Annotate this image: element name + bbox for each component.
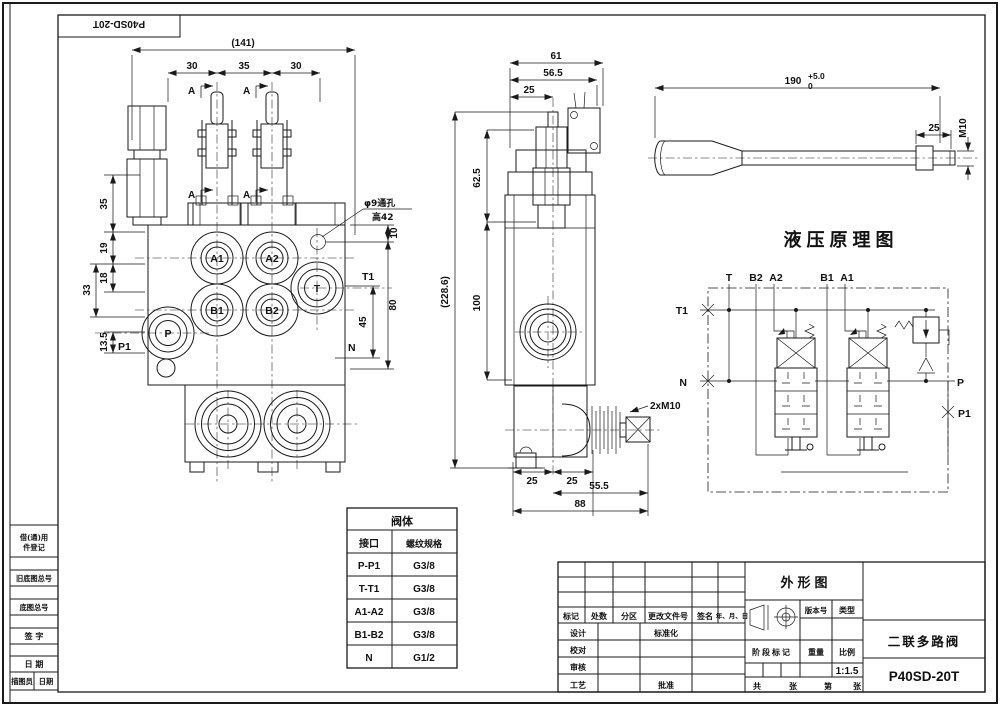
tb-page: 第 bbox=[824, 681, 832, 691]
left-title-strip: 借(通)用 件登记 旧底图总号 底图总号 签 字 日 期 描图员 日期 bbox=[10, 525, 58, 690]
side-view: 2xM10 61 56.5 25 (228.6) 62.5 100 25 25 … bbox=[440, 51, 681, 516]
port-p: P bbox=[164, 328, 171, 340]
dim-right-80: 80 bbox=[388, 299, 399, 311]
schem-p1: P1 bbox=[958, 408, 971, 420]
schem-t: T bbox=[726, 272, 733, 284]
spec-r2-port: T-T1 bbox=[359, 584, 380, 595]
tb-sign: 签名 bbox=[696, 611, 713, 621]
strip-signature: 签 字 bbox=[24, 631, 44, 641]
dim-25-top: 25 bbox=[523, 85, 535, 96]
dim-handle-m10: M10 bbox=[958, 118, 969, 138]
label-t1: T1 bbox=[362, 271, 374, 283]
front-view: A A A A (141) 30 35 30 35 19 18 33 13.5 … bbox=[82, 38, 412, 482]
dim-55-5: 55.5 bbox=[589, 481, 609, 492]
dim-overall-width: (141) bbox=[231, 38, 254, 49]
port-t: T bbox=[314, 283, 321, 295]
handle-view: 190 +5.0 0 25 M10 bbox=[648, 71, 978, 180]
spec-r5-port: N bbox=[365, 653, 372, 664]
strip-borrow-1: 借(通)用 bbox=[19, 533, 48, 542]
tb-model: P40SD-20T bbox=[889, 669, 960, 684]
dim-30-left: 30 bbox=[186, 61, 198, 72]
spec-r3-port: A1-A2 bbox=[355, 607, 384, 618]
dim-2xm10: 2xM10 bbox=[650, 401, 681, 412]
strip-master-no: 底图总号 bbox=[20, 603, 49, 612]
spec-table: 阀体 接口 螺纹规格 P-P1 G3/8 T-T1 G3/8 A1-A2 G3/… bbox=[347, 508, 457, 668]
spec-title: 阀体 bbox=[391, 514, 414, 528]
port-a2: A2 bbox=[265, 253, 279, 265]
tb-outline-drawing: 外形图 bbox=[779, 575, 831, 591]
strip-date: 日 期 bbox=[25, 659, 44, 669]
spec-r1-port: P-P1 bbox=[358, 561, 381, 572]
label-p1: P1 bbox=[118, 341, 131, 353]
dim-left-35: 35 bbox=[99, 198, 110, 210]
strip-tracer: 描图员 bbox=[11, 677, 33, 686]
tb-approve: 批准 bbox=[658, 680, 674, 690]
spec-r1-thread: G3/8 bbox=[413, 561, 435, 572]
drawing-canvas: P40SD-20T 借(通)用 件登记 旧底图总号 底图总号 签 字 日 期 描… bbox=[0, 0, 1000, 707]
section-label-a2: A bbox=[243, 86, 250, 97]
strip-borrow-2: 件登记 bbox=[23, 543, 45, 552]
rotated-model-label: P40SD-20T bbox=[93, 18, 145, 29]
hydraulic-schematic: 液压原理图 T B2 A2 B1 A1 T1 N P P1 bbox=[676, 229, 971, 492]
dim-190-tol-lo: 0 bbox=[808, 81, 813, 91]
tb-zone: 分区 bbox=[621, 611, 637, 621]
strip-old-master-no: 旧底图总号 bbox=[16, 574, 52, 583]
hole-note-line2: 高42 bbox=[372, 211, 394, 223]
tb-count: 处数 bbox=[590, 611, 608, 621]
dim-30-right: 30 bbox=[290, 61, 302, 72]
schem-t1: T1 bbox=[676, 305, 688, 317]
projection-symbol bbox=[750, 605, 798, 630]
dim-88: 88 bbox=[574, 499, 586, 510]
tb-product-name: 二联多路阀 bbox=[888, 634, 961, 649]
dim-190: 190 bbox=[785, 76, 802, 87]
tb-audit: 审核 bbox=[570, 662, 586, 672]
engineering-drawing-sheet: P40SD-20T 借(通)用 件登记 旧底图总号 底图总号 签 字 日 期 描… bbox=[0, 0, 1000, 707]
dim-right-10: 10 bbox=[389, 227, 400, 239]
strip-tracer-date: 日期 bbox=[39, 677, 53, 686]
spec-r5-thread: G1/2 bbox=[413, 653, 435, 664]
port-a1: A1 bbox=[210, 253, 224, 265]
schem-b1: B1 bbox=[820, 272, 834, 284]
spec-r2-thread: G3/8 bbox=[413, 584, 435, 595]
dim-25-a: 25 bbox=[526, 476, 538, 487]
tb-total: 共 bbox=[753, 681, 761, 691]
dim-228-6: (228.6) bbox=[440, 276, 451, 308]
tb-weight: 重量 bbox=[808, 647, 824, 657]
dim-left-13-5: 13.5 bbox=[99, 332, 110, 352]
schem-p: P bbox=[957, 377, 964, 389]
spec-col-thread: 螺纹规格 bbox=[406, 538, 443, 550]
tb-type: 类型 bbox=[839, 605, 855, 615]
schem-a2: A2 bbox=[769, 272, 783, 284]
tb-design: 设计 bbox=[570, 628, 586, 638]
label-n: N bbox=[348, 342, 356, 354]
schem-a1: A1 bbox=[840, 272, 854, 284]
tb-check: 校对 bbox=[570, 645, 586, 655]
section-label-a4: A bbox=[243, 190, 250, 201]
tb-version: 版本号 bbox=[804, 605, 828, 615]
section-label-a1: A bbox=[188, 86, 195, 97]
port-b2: B2 bbox=[265, 305, 279, 317]
tb-standardization: 标准化 bbox=[653, 628, 678, 638]
dim-handle-25: 25 bbox=[928, 123, 940, 134]
dim-61: 61 bbox=[550, 51, 562, 62]
tb-change-doc: 更改文件号 bbox=[648, 611, 688, 621]
tb-scale-value: 1:1.5 bbox=[836, 666, 859, 677]
dim-25-b: 25 bbox=[566, 476, 578, 487]
dim-left-33: 33 bbox=[82, 284, 93, 296]
schem-b2: B2 bbox=[749, 272, 763, 284]
tb-mark: 标记 bbox=[562, 611, 579, 621]
tb-sheet1: 张 bbox=[789, 682, 798, 691]
spec-col-port: 接口 bbox=[359, 537, 379, 550]
tb-stage-mark: 阶段标记 bbox=[752, 647, 792, 657]
spec-r4-port: B1-B2 bbox=[355, 630, 384, 641]
tb-process: 工艺 bbox=[570, 680, 586, 690]
dim-right-45: 45 bbox=[358, 316, 369, 328]
schematic-title: 液压原理图 bbox=[784, 229, 899, 251]
spec-r3-thread: G3/8 bbox=[413, 607, 435, 618]
dim-left-18: 18 bbox=[99, 272, 110, 284]
port-b1: B1 bbox=[210, 305, 224, 317]
rotated-title-box: P40SD-20T bbox=[58, 15, 180, 37]
schem-n: N bbox=[679, 377, 687, 389]
hole-note-line1: φ9通孔 bbox=[364, 197, 395, 209]
dim-left-19: 19 bbox=[99, 242, 110, 254]
tb-scale-label: 比例 bbox=[839, 647, 855, 657]
tb-date: 年、月、日 bbox=[716, 611, 749, 620]
dim-190-tol-hi: +5.0 bbox=[808, 71, 825, 81]
dim-62-5: 62.5 bbox=[472, 168, 483, 188]
dim-35-mid: 35 bbox=[238, 61, 250, 72]
title-block: 标记 处数 分区 更改文件号 签名 年、月、日 设计 标准化 校对 审核 工艺 … bbox=[558, 562, 985, 692]
tb-sheet2: 张 bbox=[853, 682, 862, 691]
dim-100: 100 bbox=[472, 294, 483, 311]
spec-r4-thread: G3/8 bbox=[413, 630, 435, 641]
section-label-a3: A bbox=[188, 190, 195, 201]
dim-56-5: 56.5 bbox=[543, 68, 563, 79]
